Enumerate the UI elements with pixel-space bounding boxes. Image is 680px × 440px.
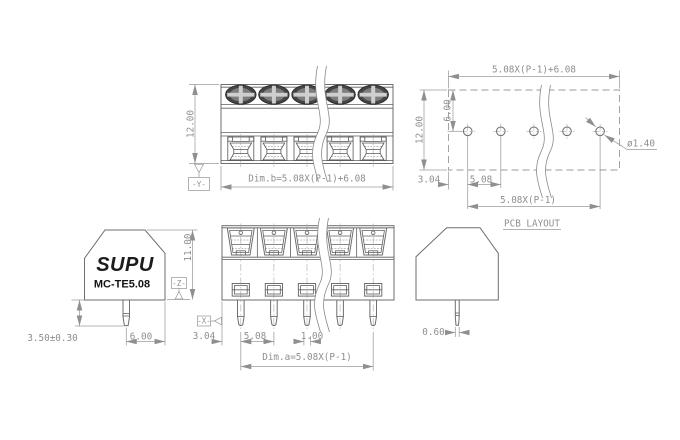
dim-pin-thickness: 0.60 [422, 327, 468, 338]
top-view-body [221, 85, 393, 168]
pcb-hole [560, 124, 575, 139]
dim-b-label: Dim.b=5.08X(P-1)+6.08 [248, 174, 366, 185]
front-view: -X- 3.04 5.08 1.00 Dim.a=5.08X(P-1) [193, 218, 394, 371]
clamp-window [332, 284, 349, 297]
pin-width-label: 1.00 [301, 331, 323, 342]
pcb-span-label: 5.08X(P-1) [500, 195, 556, 206]
datum-z-label: -Z- [172, 279, 186, 288]
side-height-label: 11.00 [183, 234, 194, 262]
dim-pcb-edge-hole: 3.04 [418, 172, 477, 190]
datum-x-symbol: -X- [197, 316, 221, 326]
profile-pin [455, 300, 459, 325]
break-line [315, 218, 332, 332]
break-mask [541, 85, 549, 198]
pcb-layout-view: 5.08X(P-1)+6.08 12.00 6.00 3.04 5.08 5.0… [415, 65, 658, 230]
screw-icon [358, 85, 388, 104]
dim-pin-to-back: 6.00 [126, 302, 165, 346]
datum-y-label: -Y- [192, 180, 206, 189]
model-number: MC-TE5.08 [94, 279, 150, 291]
break-mask [319, 218, 327, 332]
datum-z-symbol: -Z- [172, 278, 187, 300]
side-pin [123, 300, 130, 326]
pin-pitch-label: 5.08 [244, 331, 266, 342]
pcb-height-label: 12.00 [415, 116, 426, 144]
dim-top-width: Dim.b=5.08X(P-1)+6.08 [221, 166, 393, 191]
pin-thickness-label: 0.60 [422, 327, 444, 338]
pcb-layout-title-label: PCB LAYOUT [504, 219, 560, 230]
break-mask [317, 66, 325, 182]
clamp-window [365, 284, 382, 297]
dim-pcb-hole-offset: 6.00 [443, 90, 463, 131]
break-line [313, 66, 330, 182]
clamp-window [265, 284, 282, 297]
pcb-hole-offset-label: 6.00 [443, 99, 454, 121]
top-view-height-label: 12.00 [186, 110, 197, 138]
dim-pcb-overall: 5.08X(P-1)+6.08 [449, 65, 620, 89]
centerlines [241, 224, 373, 332]
front-view-body [222, 224, 394, 332]
screw-heads [226, 85, 389, 104]
edge-to-pin-label: 3.04 [193, 331, 216, 342]
brand-logo: SUPU [96, 254, 154, 276]
dim-pcb-pitch: 5.08 [468, 175, 501, 186]
technical-drawing-sheet: 12.00 -Y- Dim.b=5.08X(P-1)+6.08 5.08X(P-… [0, 0, 680, 440]
side-profile-view: 0.60 [416, 228, 498, 338]
clamp-window [232, 284, 249, 297]
pcb-overall-width-label: 5.08X(P-1)+6.08 [492, 65, 576, 76]
pin-length-label: 3.50±0.30 [27, 333, 77, 344]
dim-pin-width: 1.00 [296, 331, 324, 342]
dim-pin-length: 3.50±0.30 [27, 300, 123, 344]
clamp-window [298, 284, 315, 297]
dim-top-height: 12.00 [186, 85, 220, 164]
screw-icon [325, 85, 355, 104]
hole-diameter-label: ø1.40 [627, 139, 655, 150]
pcb-edge-hole-label: 3.04 [418, 175, 441, 186]
pcb-layout-title: PCB LAYOUT [503, 219, 561, 230]
screw-icon [226, 85, 256, 104]
break-line [537, 85, 554, 198]
side-view: SUPU MC-TE5.08 11.00 -Z- 3.50±0.30 6.00 [27, 230, 197, 346]
drawing-canvas: 12.00 -Y- Dim.b=5.08X(P-1)+6.08 5.08X(P-… [0, 0, 680, 440]
dim-a-label: Dim.a=5.08X(P-1) [262, 352, 352, 363]
dim-pin-span: Dim.a=5.08X(P-1) [241, 352, 373, 367]
clamp-windows [232, 284, 382, 297]
datum-x-label: -X- [197, 317, 211, 326]
pin-to-back-label: 6.00 [130, 332, 152, 343]
profile-body [416, 228, 498, 300]
datum-y-symbol: -Y- [189, 164, 210, 190]
pcb-hole [526, 124, 541, 139]
dim-pin-pitch: 5.08 [241, 331, 274, 342]
pcb-holes [460, 124, 607, 139]
dim-pcb-span: 5.08X(P-1) [468, 195, 600, 207]
pcb-pitch-label: 5.08 [470, 175, 492, 186]
top-view: 12.00 -Y- Dim.b=5.08X(P-1)+6.08 [186, 66, 394, 191]
screw-icon [259, 85, 289, 104]
